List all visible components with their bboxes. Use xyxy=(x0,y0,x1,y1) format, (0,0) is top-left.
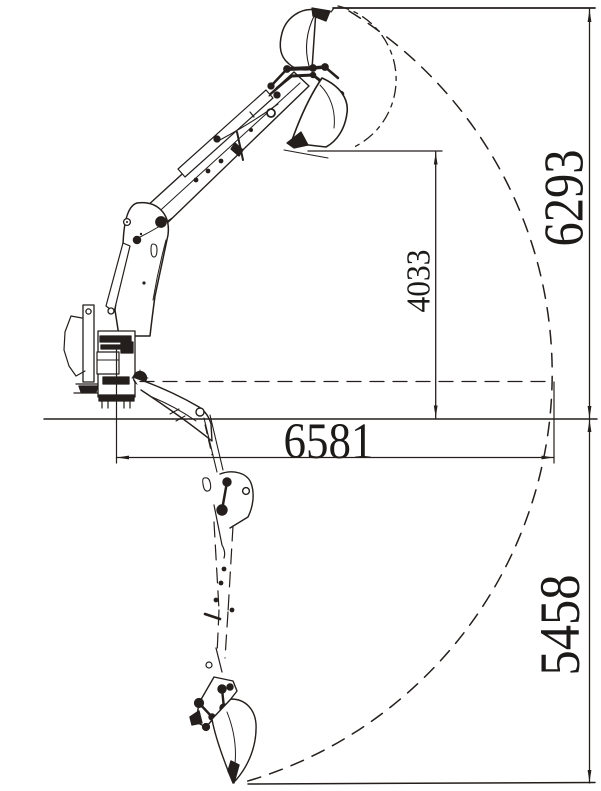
svg-text:6293: 6293 xyxy=(534,150,596,247)
svg-text:6581: 6581 xyxy=(284,414,374,470)
svg-text:4033: 4033 xyxy=(401,250,438,313)
svg-text:5458: 5458 xyxy=(529,575,592,676)
